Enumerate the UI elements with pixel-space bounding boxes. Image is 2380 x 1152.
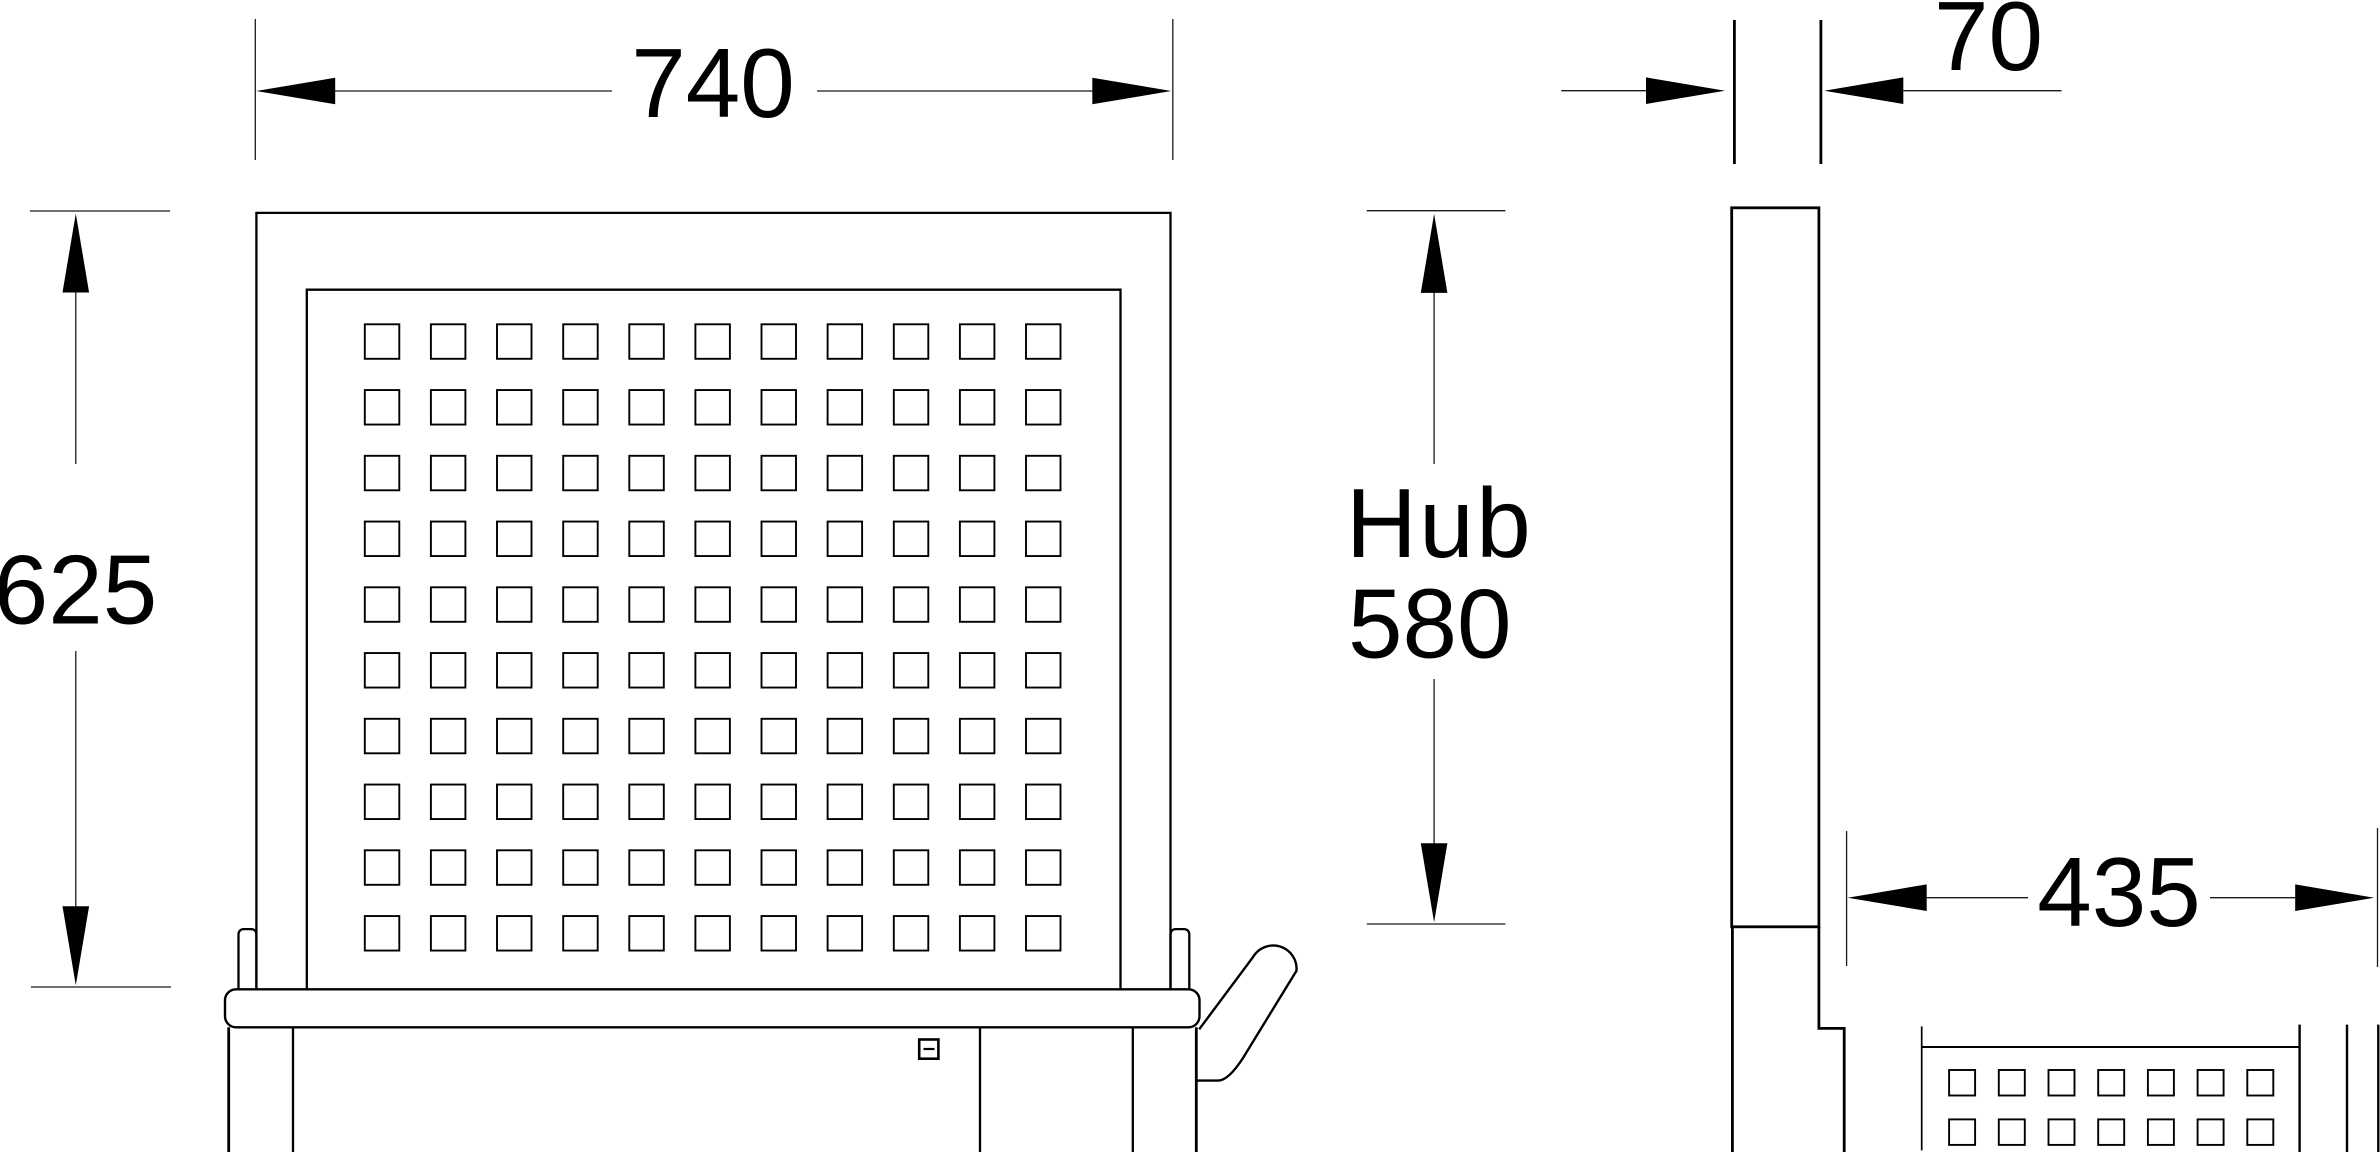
svg-text:70: 70	[1934, 0, 2043, 91]
svg-text:625: 625	[0, 535, 157, 645]
svg-text:435: 435	[2037, 837, 2201, 947]
svg-text:740: 740	[631, 28, 795, 138]
svg-text:Hub: Hub	[1346, 468, 1533, 578]
svg-text:580: 580	[1348, 569, 1512, 679]
